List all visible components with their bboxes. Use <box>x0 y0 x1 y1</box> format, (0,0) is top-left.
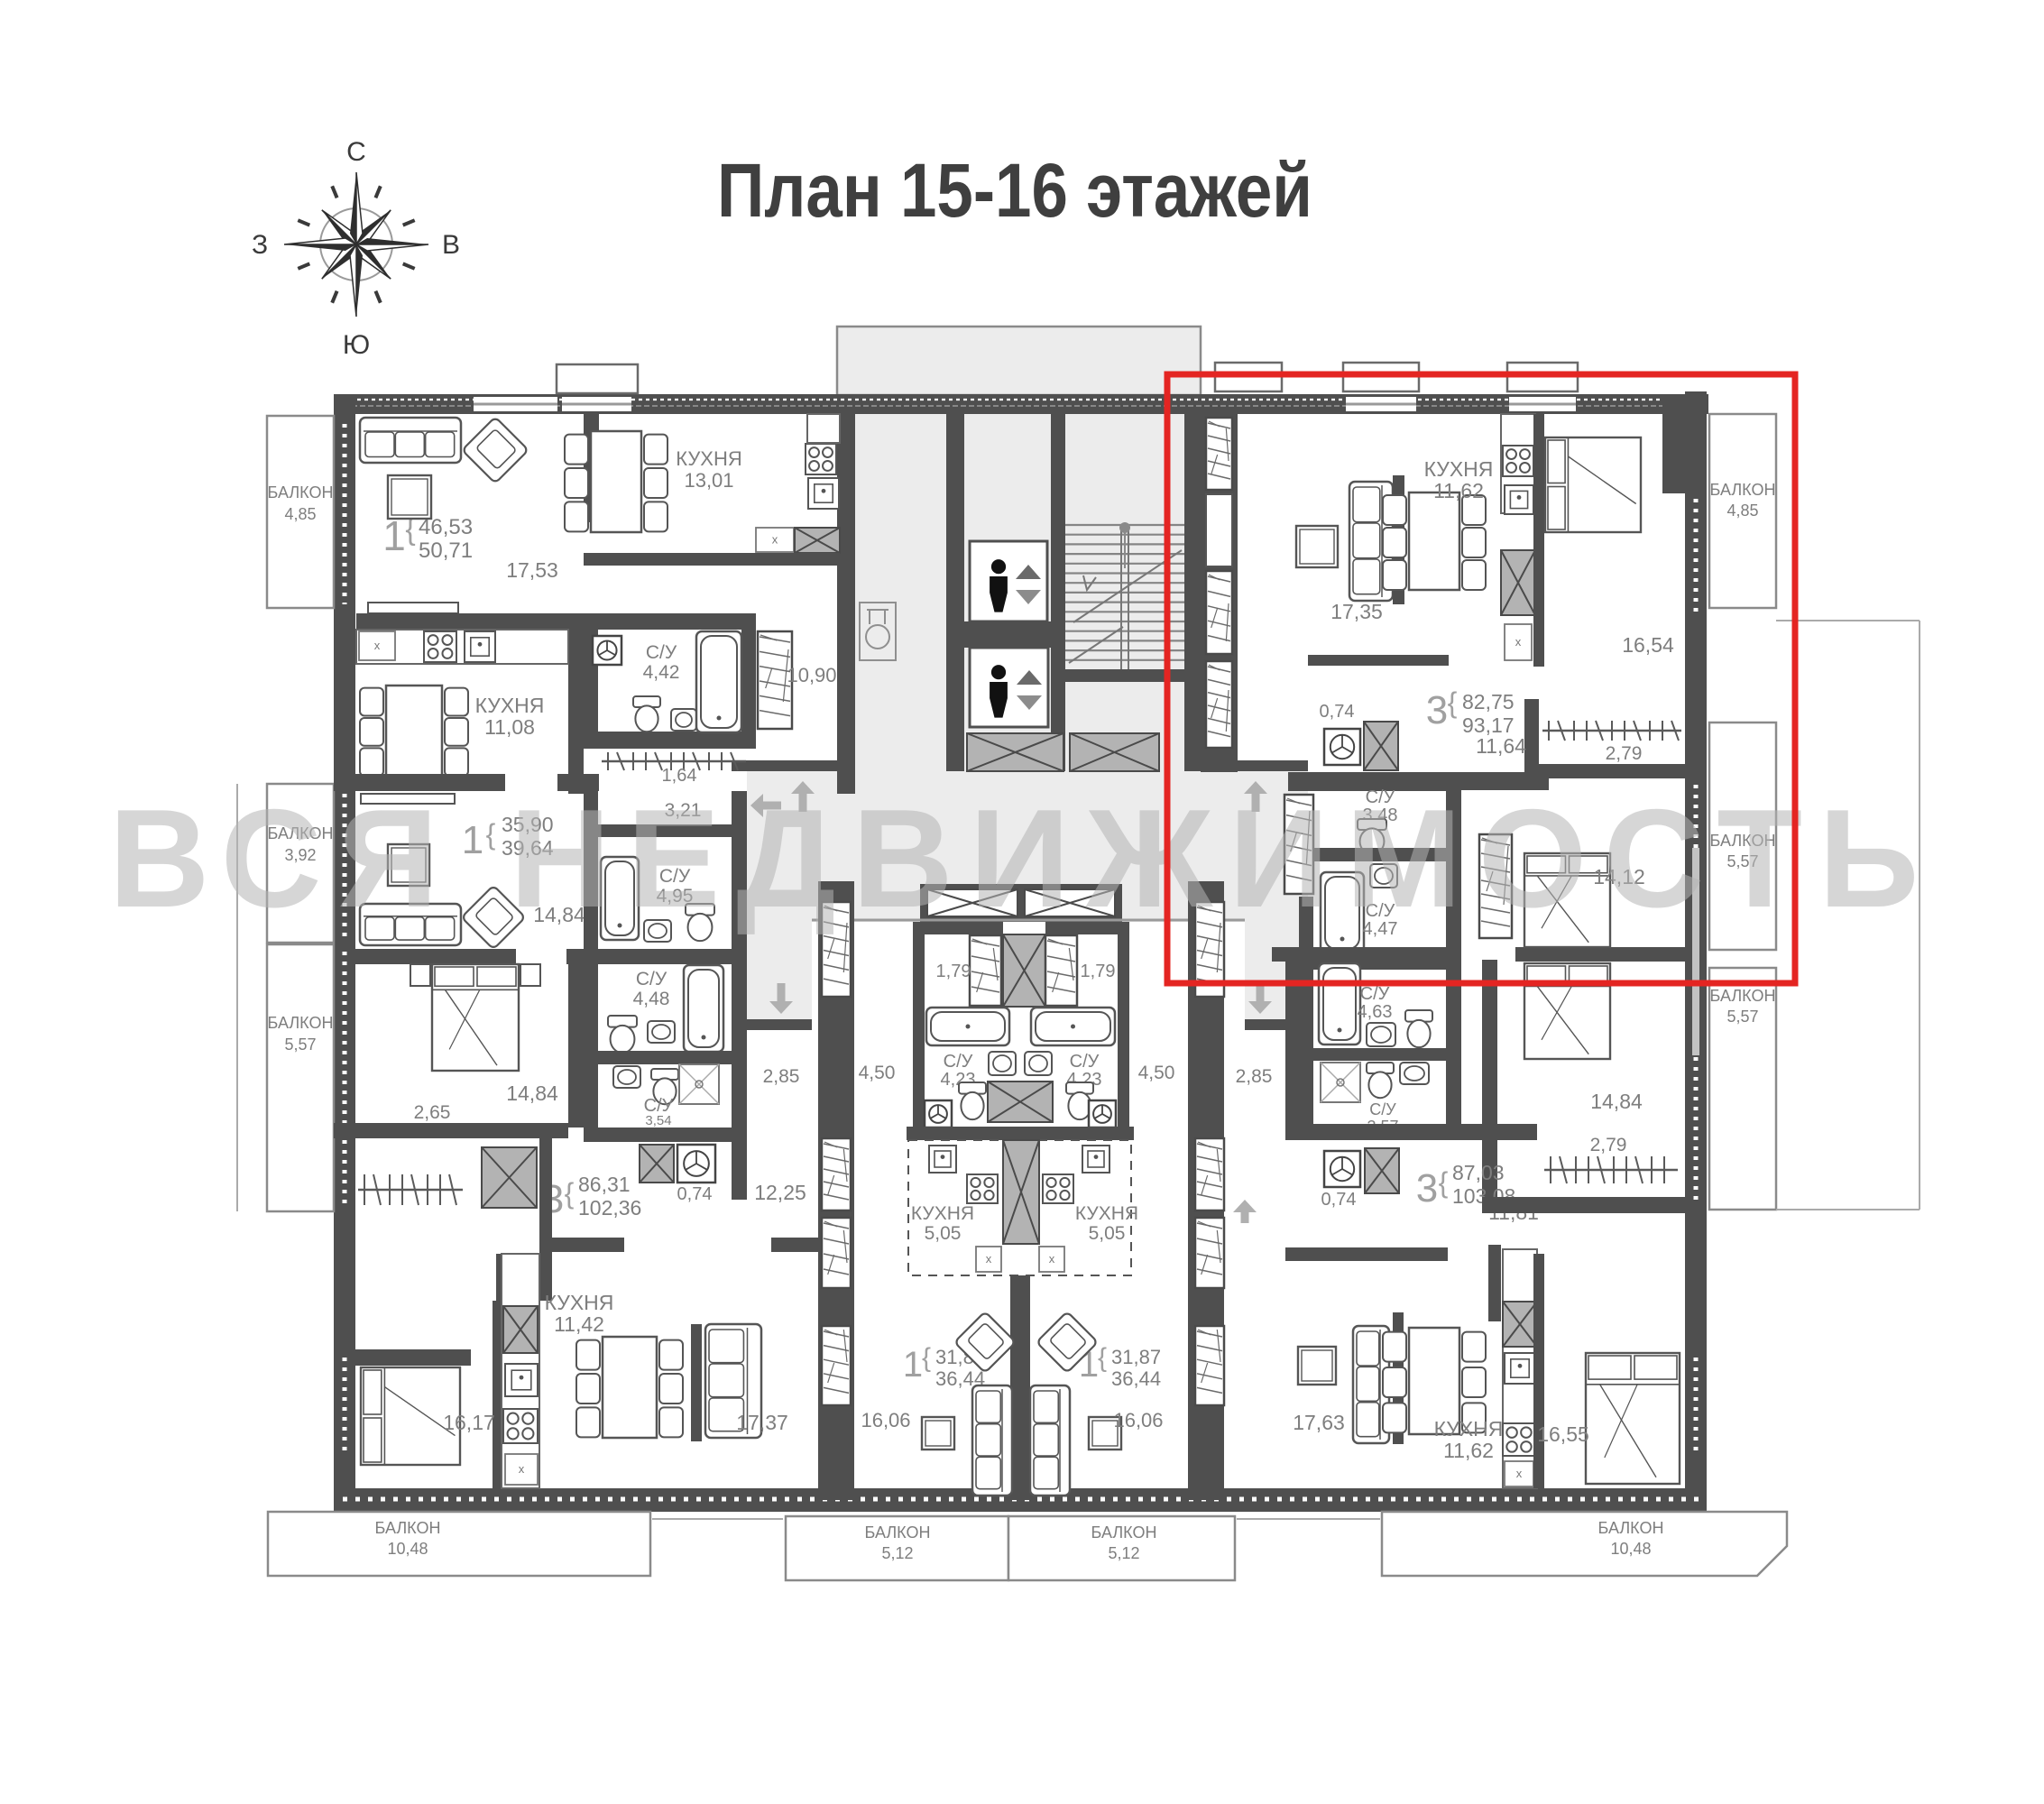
svg-text:КУХНЯ: КУХНЯ <box>1075 1203 1138 1224</box>
svg-text:16,17: 16,17 <box>443 1411 495 1434</box>
svg-text:x: x <box>986 1252 992 1266</box>
svg-text:2,85: 2,85 <box>1236 1066 1273 1087</box>
svg-text:Ю: Ю <box>343 330 370 360</box>
svg-text:БАЛКОН: БАЛКОН <box>268 1014 334 1032</box>
svg-text:10,48: 10,48 <box>1610 1540 1651 1558</box>
svg-text:{: { <box>922 1343 931 1373</box>
svg-text:36,44: 36,44 <box>1111 1367 1161 1390</box>
svg-text:0,74: 0,74 <box>677 1184 713 1204</box>
svg-text:С/У: С/У <box>1369 1100 1396 1118</box>
svg-text:КУХНЯ: КУХНЯ <box>676 447 742 470</box>
svg-text:{: { <box>1439 1166 1449 1199</box>
svg-text:2,85: 2,85 <box>763 1066 800 1087</box>
svg-text:{: { <box>1098 1343 1107 1373</box>
svg-text:КУХНЯ: КУХНЯ <box>475 694 545 717</box>
svg-text:2,65: 2,65 <box>414 1102 451 1123</box>
svg-text:ВСЯ НЕДВИЖИМОСТЬ: ВСЯ НЕДВИЖИМОСТЬ <box>109 780 1936 936</box>
svg-text:50,71: 50,71 <box>419 538 473 563</box>
svg-text:17,63: 17,63 <box>1293 1411 1345 1434</box>
svg-text:16,06: 16,06 <box>861 1409 910 1431</box>
svg-text:11,08: 11,08 <box>484 715 535 739</box>
svg-text:4,50: 4,50 <box>1138 1063 1175 1083</box>
svg-text:4,85: 4,85 <box>284 505 316 523</box>
svg-text:11,64: 11,64 <box>1476 734 1526 758</box>
svg-text:С/У: С/У <box>1070 1052 1100 1072</box>
svg-text:13,01: 13,01 <box>684 469 733 492</box>
svg-text:4,85: 4,85 <box>1726 502 1758 520</box>
svg-text:БАЛКОН: БАЛКОН <box>1598 1519 1664 1537</box>
svg-text:2,79: 2,79 <box>1590 1135 1627 1155</box>
svg-text:{: { <box>565 1177 575 1210</box>
svg-text:БАЛКОН: БАЛКОН <box>268 483 334 502</box>
svg-text:14,84: 14,84 <box>506 1081 558 1105</box>
svg-text:БАЛКОН: БАЛКОН <box>1091 1523 1157 1542</box>
svg-text:2,79: 2,79 <box>1606 743 1643 764</box>
svg-text:17,37: 17,37 <box>736 1411 788 1434</box>
svg-text:3,54: 3,54 <box>645 1113 671 1128</box>
svg-text:11,42: 11,42 <box>554 1312 604 1336</box>
svg-text:5,05: 5,05 <box>925 1223 962 1244</box>
svg-text:С: С <box>346 137 366 167</box>
svg-text:12,25: 12,25 <box>754 1181 806 1204</box>
svg-text:1: 1 <box>903 1345 923 1385</box>
svg-text:11,62: 11,62 <box>1443 1439 1494 1462</box>
svg-text:14,84: 14,84 <box>1590 1090 1643 1113</box>
svg-text:87,03: 87,03 <box>1452 1161 1505 1184</box>
svg-text:{: { <box>1448 686 1458 719</box>
svg-text:3: 3 <box>1416 1166 1438 1210</box>
svg-text:82,75: 82,75 <box>1462 690 1515 713</box>
svg-text:x: x <box>1516 1467 1523 1480</box>
svg-text:5,57: 5,57 <box>1726 1008 1758 1026</box>
svg-text:КУХНЯ: КУХНЯ <box>1434 1417 1504 1440</box>
svg-text:5,05: 5,05 <box>1089 1223 1126 1244</box>
svg-text:16,54: 16,54 <box>1622 633 1674 657</box>
svg-text:С/У: С/У <box>646 642 677 663</box>
svg-text:В: В <box>442 230 460 260</box>
svg-text:3: 3 <box>1426 688 1448 732</box>
svg-text:1,79: 1,79 <box>936 962 971 981</box>
svg-text:102,36: 102,36 <box>578 1196 641 1220</box>
svg-text:x: x <box>1515 635 1522 649</box>
svg-text:16,06: 16,06 <box>1113 1409 1163 1431</box>
svg-text:31,87: 31,87 <box>1111 1346 1161 1368</box>
svg-text:БАЛКОН: БАЛКОН <box>375 1519 441 1537</box>
svg-text:КУХНЯ: КУХНЯ <box>545 1291 614 1314</box>
svg-text:11,62: 11,62 <box>1433 479 1484 502</box>
svg-text:5,57: 5,57 <box>284 1035 316 1054</box>
svg-text:БАЛКОН: БАЛКОН <box>865 1523 931 1542</box>
svg-text:КУХНЯ: КУХНЯ <box>1424 457 1494 481</box>
svg-text:КУХНЯ: КУХНЯ <box>911 1203 974 1224</box>
svg-text:16,55: 16,55 <box>1537 1422 1589 1446</box>
svg-text:4,63: 4,63 <box>1358 1002 1393 1022</box>
svg-text:x: x <box>374 639 381 652</box>
svg-text:5,12: 5,12 <box>1108 1544 1139 1562</box>
svg-text:С/У: С/У <box>1360 984 1390 1004</box>
svg-text:4,48: 4,48 <box>633 989 670 1009</box>
svg-text:С/У: С/У <box>636 969 668 989</box>
svg-text:86,31: 86,31 <box>578 1173 631 1196</box>
svg-text:17,35: 17,35 <box>1330 600 1383 623</box>
svg-text:10,90: 10,90 <box>787 664 836 686</box>
svg-text:x: x <box>519 1462 525 1476</box>
svg-text:БАЛКОН: БАЛКОН <box>1710 481 1776 499</box>
svg-text:С/У: С/У <box>944 1052 973 1072</box>
svg-text:З: З <box>252 230 268 260</box>
svg-text:x: x <box>772 533 778 547</box>
svg-text:x: x <box>1049 1252 1055 1266</box>
svg-text:0,74: 0,74 <box>1320 702 1355 722</box>
svg-text:10,48: 10,48 <box>387 1540 428 1558</box>
svg-text:БАЛКОН: БАЛКОН <box>1710 987 1776 1005</box>
svg-text:0,74: 0,74 <box>1321 1190 1357 1210</box>
svg-text:5,12: 5,12 <box>881 1544 913 1562</box>
svg-text:4,50: 4,50 <box>859 1063 896 1083</box>
svg-text:1,79: 1,79 <box>1081 962 1116 981</box>
svg-text:17,53: 17,53 <box>506 558 558 582</box>
svg-text:План 15-16 этажей: План 15-16 этажей <box>717 148 1312 233</box>
svg-text:4,42: 4,42 <box>643 662 680 683</box>
